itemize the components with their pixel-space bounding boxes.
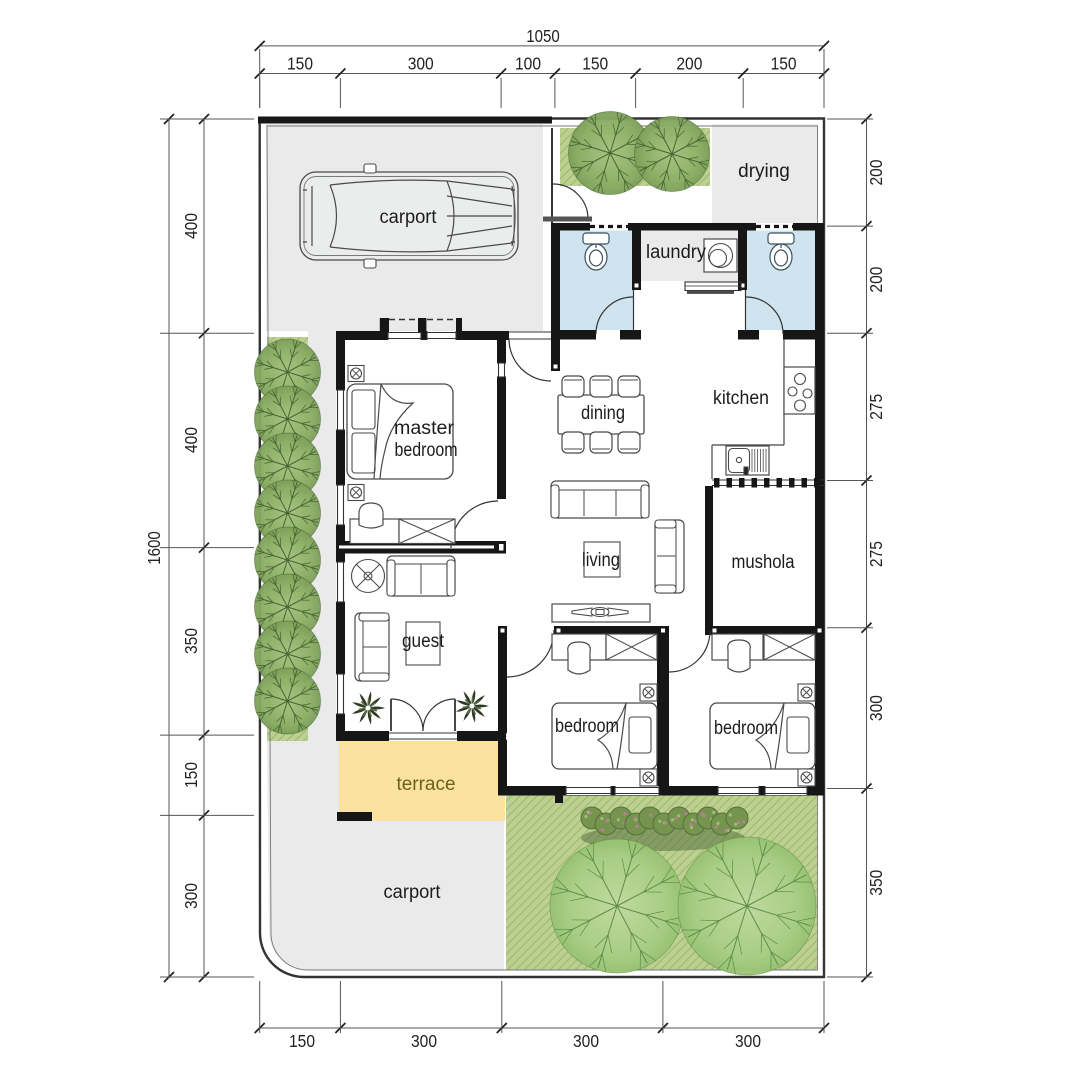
svg-text:carport: carport — [384, 882, 442, 903]
svg-text:bedroom: bedroom — [555, 716, 619, 737]
svg-text:200: 200 — [676, 54, 702, 74]
svg-text:150: 150 — [771, 54, 797, 74]
svg-text:300: 300 — [866, 695, 886, 721]
svg-text:150: 150 — [287, 54, 313, 74]
svg-text:bedroom: bedroom — [395, 440, 458, 461]
svg-text:300: 300 — [181, 883, 201, 909]
svg-text:mushola: mushola — [732, 552, 795, 573]
svg-text:drying: drying — [738, 161, 790, 182]
svg-text:150: 150 — [289, 1031, 315, 1051]
svg-text:terrace: terrace — [397, 774, 456, 795]
svg-text:300: 300 — [408, 54, 434, 74]
svg-text:350: 350 — [866, 869, 886, 895]
svg-text:200: 200 — [866, 159, 886, 185]
svg-text:100: 100 — [515, 54, 541, 74]
svg-text:400: 400 — [181, 427, 201, 453]
svg-text:300: 300 — [411, 1031, 437, 1051]
svg-text:dining: dining — [581, 403, 625, 424]
svg-text:master: master — [394, 418, 455, 439]
svg-text:275: 275 — [866, 394, 886, 420]
svg-text:carport: carport — [380, 207, 438, 228]
svg-text:150: 150 — [181, 762, 201, 788]
svg-text:guest: guest — [402, 631, 445, 652]
svg-text:350: 350 — [181, 628, 201, 654]
svg-text:kitchen: kitchen — [713, 388, 769, 409]
svg-text:laundry: laundry — [646, 242, 706, 263]
svg-text:living: living — [582, 550, 620, 571]
svg-text:bedroom: bedroom — [714, 718, 778, 739]
svg-text:400: 400 — [181, 213, 201, 239]
svg-text:300: 300 — [573, 1031, 599, 1051]
svg-text:200: 200 — [866, 266, 886, 292]
svg-text:1050: 1050 — [526, 26, 560, 46]
svg-text:275: 275 — [866, 541, 886, 567]
svg-text:300: 300 — [735, 1031, 761, 1051]
svg-text:150: 150 — [582, 54, 608, 74]
